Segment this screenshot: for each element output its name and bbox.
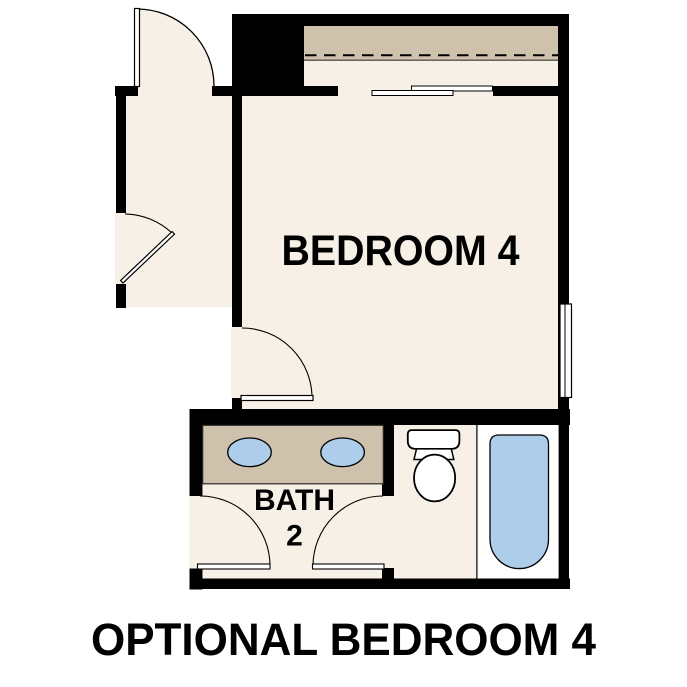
svg-text:OPTIONAL BEDROOM 4: OPTIONAL BEDROOM 4 [91, 614, 596, 665]
svg-text:BEDROOM 4: BEDROOM 4 [282, 227, 520, 275]
svg-text:BATH: BATH [254, 484, 335, 517]
svg-text:2: 2 [286, 520, 303, 553]
